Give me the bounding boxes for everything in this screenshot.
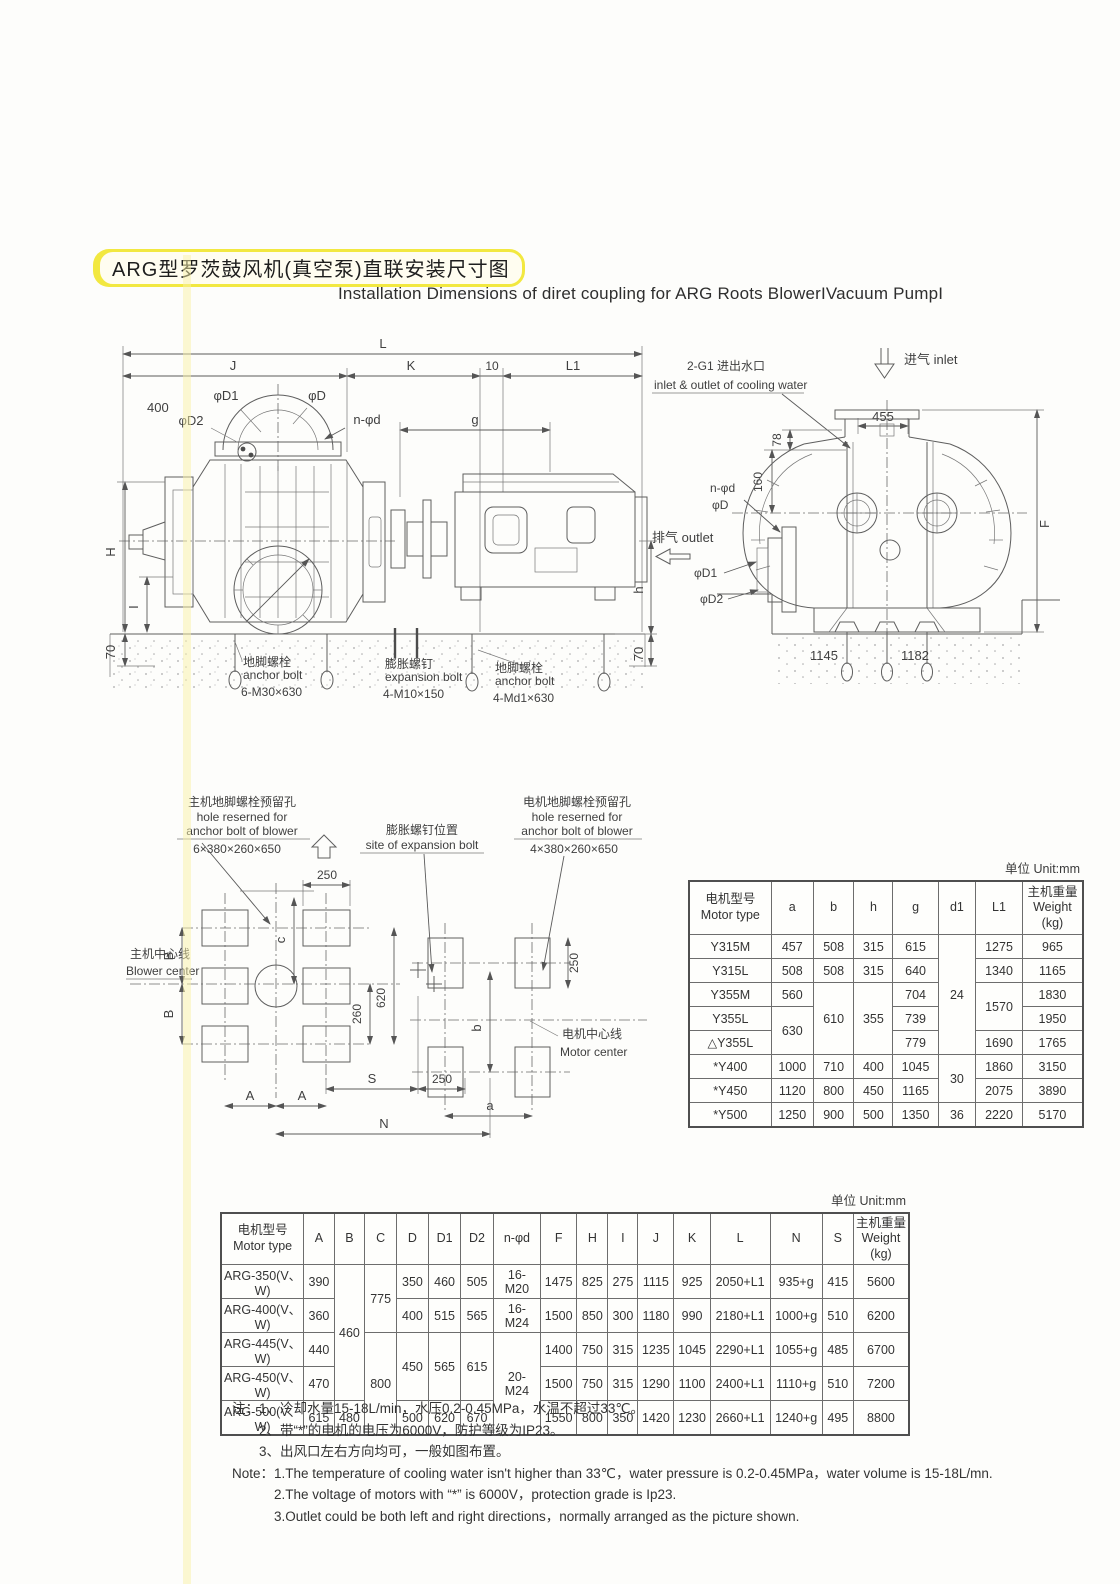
dim-label-N: N: [379, 1116, 388, 1131]
dim-label-260: 260: [350, 1004, 364, 1024]
cell: 1500: [541, 1299, 577, 1333]
cell: 990: [674, 1299, 710, 1333]
motor-dimension-table-block: 单位 Unit:mm 电机型号Motor type a b h g d1 L1 …: [688, 858, 1084, 1128]
note-en-3: 3.Outlet could be both left and right di…: [274, 1506, 1012, 1528]
cell: 350: [397, 1265, 429, 1299]
dim-label-c: c: [273, 936, 288, 943]
cell: 2290+L1: [710, 1333, 770, 1367]
col-header-g: g: [893, 881, 938, 935]
anchor-bolt1-en: anchor bolt: [243, 668, 303, 682]
col-header-n-phi-d: n-φd: [493, 1213, 540, 1265]
col-header-D: D: [397, 1213, 429, 1265]
dim-label-455: 455: [872, 409, 894, 424]
anchor-bolt2-spec: 4-Md1×630: [493, 691, 554, 705]
cell: 36: [938, 1103, 975, 1128]
cell: 1100: [674, 1367, 710, 1401]
dim-label-B1: B: [161, 952, 176, 961]
dim-label-I: I: [126, 605, 141, 609]
cell: 1115: [638, 1265, 674, 1299]
cell: 1045: [893, 1055, 938, 1079]
cell: 24: [938, 935, 975, 1055]
cell: 510: [822, 1299, 853, 1333]
cell: 935+g: [770, 1265, 822, 1299]
cell: 2180+L1: [710, 1299, 770, 1333]
col-header-a: a: [771, 881, 813, 935]
cell: 6200: [853, 1299, 909, 1333]
col-header-weight: 主机重量Weight(kg): [853, 1213, 909, 1265]
dim-label-A1: A: [246, 1088, 255, 1103]
cell: 630: [771, 1007, 813, 1055]
cell: 5600: [853, 1265, 909, 1299]
blower-center-en: Blower center: [126, 964, 199, 978]
cell: 2400+L1: [710, 1367, 770, 1401]
anchor-bolt1-zh: 地脚螺栓: [243, 654, 291, 669]
cell: 16-M20: [493, 1265, 540, 1299]
cell: 460: [334, 1265, 365, 1401]
col-header-b: b: [813, 881, 854, 935]
cell: 750: [577, 1367, 608, 1401]
cell: 400: [397, 1299, 429, 1333]
anchor-bolt2-en: anchor bolt: [495, 674, 555, 688]
cell: 1250: [771, 1103, 813, 1128]
cell: 300: [608, 1299, 638, 1333]
dim-label-F: F: [1037, 520, 1052, 528]
cell: 390: [304, 1265, 335, 1299]
dim-label-400: 400: [147, 400, 169, 415]
col-header-weight: 主机重量Weight(kg): [1022, 881, 1083, 935]
motor-hole-zh: 电机地脚螺栓预留孔: [523, 794, 631, 809]
motor-hole-spec: 4×380×260×650: [530, 842, 618, 856]
cell: 275: [608, 1265, 638, 1299]
dim-label-250-right: 250: [567, 953, 581, 973]
cell: 1290: [638, 1367, 674, 1401]
cell: 1055+g: [770, 1333, 822, 1367]
expansion-bolt-spec: 4-M10×150: [383, 687, 444, 701]
note-en-2: 2.The voltage of motors with “*” is 6000…: [274, 1484, 1012, 1506]
cell: 315: [854, 935, 893, 959]
cell: 2075: [976, 1079, 1023, 1103]
col-header-S: S: [822, 1213, 853, 1265]
dim-label-K: K: [407, 358, 416, 373]
dim-label-g: g: [471, 412, 478, 427]
cell: 500: [854, 1103, 893, 1128]
cell: 900: [813, 1103, 854, 1128]
cell: 450: [397, 1333, 429, 1401]
table1-unit-label: 单位 Unit:mm: [688, 858, 1080, 877]
cell: 850: [577, 1299, 608, 1333]
cell: 565: [461, 1299, 493, 1333]
cell: 1350: [893, 1103, 938, 1128]
cell: 615: [461, 1333, 493, 1401]
cell: 360: [304, 1299, 335, 1333]
cell: 30: [938, 1055, 975, 1103]
table-row: ARG-400(V、W) 360 400 515 565 16-M24 1500…: [221, 1299, 909, 1333]
cell: 355: [854, 983, 893, 1055]
table-header-row: 电机型号Motor type a b h g d1 L1 主机重量Weight(…: [689, 881, 1083, 935]
table-row: Y355M 560 610 355 704 1570 1830: [689, 983, 1083, 1007]
cell: ARG-350(V、W): [221, 1265, 304, 1299]
cell: 3890: [1022, 1079, 1083, 1103]
cell: 3150: [1022, 1055, 1083, 1079]
note-zh-3: 3、出风口左右方向均可，一般如图布置。: [259, 1441, 1012, 1463]
cell: Y355M: [689, 983, 771, 1007]
cell: 750: [577, 1333, 608, 1367]
col-header-motor-type: 电机型号Motor type: [221, 1213, 304, 1265]
cell: 739: [893, 1007, 938, 1031]
cell: 485: [822, 1333, 853, 1367]
cell: 800: [813, 1079, 854, 1103]
expansion-bolt-zh: 膨胀螺钉: [385, 657, 433, 671]
cell: 1000: [771, 1055, 813, 1079]
col-header-H: H: [577, 1213, 608, 1265]
notes-en-label: Note：: [232, 1463, 274, 1528]
cell: 315: [608, 1367, 638, 1401]
cell: 5170: [1022, 1103, 1083, 1128]
col-header-D1: D1: [428, 1213, 460, 1265]
dim-label-1145: 1145: [810, 648, 838, 663]
dim-label-1182: 1182: [901, 648, 929, 663]
phi-d-label: φD: [712, 498, 729, 512]
cell: Y355L: [689, 1007, 771, 1031]
dim-label-10: 10: [485, 359, 499, 373]
col-header-motor-type: 电机型号Motor type: [689, 881, 771, 935]
cell: 515: [428, 1299, 460, 1333]
col-header-N: N: [770, 1213, 822, 1265]
cell: 775: [365, 1265, 397, 1333]
cell: 825: [577, 1265, 608, 1299]
cell: 1110+g: [770, 1367, 822, 1401]
cell: 2050+L1: [710, 1265, 770, 1299]
dim-label-b: b: [469, 1024, 484, 1031]
cell: 1860: [976, 1055, 1023, 1079]
cell: 470: [304, 1367, 335, 1401]
motor-hole-en1: hole reserned for: [532, 810, 623, 824]
table-row: Y315M 457 508 315 615 24 1275 965: [689, 935, 1083, 959]
dim-label-L: L: [379, 336, 386, 351]
n-phi-d-label: n-φd: [353, 412, 380, 427]
col-header-L: L: [710, 1213, 770, 1265]
cell: 2220: [976, 1103, 1023, 1128]
cell: 1000+g: [770, 1299, 822, 1333]
cell: 1570: [976, 983, 1023, 1031]
page-subtitle: Installation Dimensions of diret couplin…: [338, 284, 943, 304]
anchor-bolt1-spec: 6-M30×630: [241, 685, 302, 699]
blower-hole-en1: hole reserned for: [197, 810, 288, 824]
expansion-bolt-en: expansion bolt: [385, 670, 463, 684]
cell: 457: [771, 935, 813, 959]
cell: *Y400: [689, 1055, 771, 1079]
inlet-arrow-icon: [875, 348, 894, 378]
col-header-I: I: [608, 1213, 638, 1265]
cell: 16-M24: [493, 1299, 540, 1333]
col-header-d1: d1: [938, 881, 975, 935]
cell: 1165: [1022, 959, 1083, 983]
cell: 460: [428, 1265, 460, 1299]
dim-label-620: 620: [374, 988, 388, 1008]
phi-d1-label: φD1: [694, 566, 717, 580]
col-header-B: B: [334, 1213, 365, 1265]
cell: 508: [813, 935, 854, 959]
col-header-J: J: [638, 1213, 674, 1265]
table2-unit-label: 单位 Unit:mm: [220, 1190, 906, 1209]
cell: 965: [1022, 935, 1083, 959]
cell: 505: [461, 1265, 493, 1299]
cell: 1165: [893, 1079, 938, 1103]
cell: 1690: [976, 1031, 1023, 1055]
cell: 1340: [976, 959, 1023, 983]
dim-label-B2: B: [161, 1010, 176, 1019]
cell: 315: [854, 959, 893, 983]
cell: 6700: [853, 1333, 909, 1367]
cell: 450: [854, 1079, 893, 1103]
dim-label-70-left: 70: [103, 645, 118, 659]
cell: Y315L: [689, 959, 771, 983]
cell: 610: [813, 983, 854, 1055]
foundation-plan-drawing: 主机地脚螺栓预留孔 hole reserned for anchor bolt …: [122, 788, 687, 1153]
motor-hole-en2: anchor bolt of blower: [521, 824, 632, 838]
cell: 704: [893, 983, 938, 1007]
col-header-D2: D2: [461, 1213, 493, 1265]
cell: 315: [608, 1333, 638, 1367]
cell: 779: [893, 1031, 938, 1055]
cell: 510: [822, 1367, 853, 1401]
cell: 1950: [1022, 1007, 1083, 1031]
cell: 1500: [541, 1367, 577, 1401]
cell: 1765: [1022, 1031, 1083, 1055]
motor-dimension-table: 电机型号Motor type a b h g d1 L1 主机重量Weight(…: [688, 880, 1084, 1128]
col-header-A: A: [304, 1213, 335, 1265]
cell: ARG-445(V、W): [221, 1333, 304, 1367]
phi-d2-label: φD2: [178, 413, 203, 428]
cell: 1275: [976, 935, 1023, 959]
cooling-label-zh: 2-G1 进出水口: [687, 359, 765, 373]
cell: ARG-400(V、W): [221, 1299, 304, 1333]
blower-hole-en2: anchor bolt of blower: [186, 824, 297, 838]
phi-d-label: φD: [308, 388, 326, 403]
cell: 1830: [1022, 983, 1083, 1007]
cell: *Y500: [689, 1103, 771, 1128]
col-header-L1: L1: [976, 881, 1023, 935]
dim-label-a: a: [486, 1098, 494, 1113]
motor-center-zh: 电机中心线: [562, 1026, 622, 1041]
table-row: ARG-350(V、W) 390 460 775 350 460 505 16-…: [221, 1265, 909, 1299]
outlet-label: 排气 outlet: [652, 530, 714, 545]
cell: △Y355L: [689, 1031, 771, 1055]
outlet-arrow-icon: [656, 549, 690, 564]
cell: 415: [822, 1265, 853, 1299]
dim-label-250-bottom: 250: [432, 1072, 452, 1086]
cell: 710: [813, 1055, 854, 1079]
expansion-site-zh: 膨胀螺钉位置: [386, 822, 458, 837]
flange-ticks: [751, 480, 1003, 570]
cell: 508: [771, 959, 813, 983]
inlet-label: 进气 inlet: [904, 352, 958, 367]
blower-center-zh: 主机中心线: [130, 946, 190, 961]
blower-hole-spec: 6×380×260×650: [193, 842, 281, 856]
cooling-label-en: inlet & outlet of cooling water: [654, 378, 807, 392]
cell: 1180: [638, 1299, 674, 1333]
cell: 1045: [674, 1333, 710, 1367]
table-row: *Y450 1120 800 450 1165 2075 3890: [689, 1079, 1083, 1103]
cell: 440: [304, 1333, 335, 1367]
table-row: *Y500 1250 900 500 1350 36 2220 5170: [689, 1103, 1083, 1128]
dim-label-A2: A: [298, 1088, 307, 1103]
table-header-row: 电机型号Motor type A B C D D1 D2 n-φd F H I …: [221, 1213, 909, 1265]
notes-zh-label: 注：: [232, 1398, 259, 1463]
up-arrow-icon: [312, 835, 336, 858]
note-zh-1: 1、冷却水量15-18L/min，水压0.2-0.45MPa，水温不超过33℃。: [259, 1398, 1012, 1420]
cell: 400: [854, 1055, 893, 1079]
cell: 560: [771, 983, 813, 1007]
col-header-F: F: [541, 1213, 577, 1265]
cell: Y315M: [689, 935, 771, 959]
table-row: ARG-450(V、W) 470 1500 750 315 1290 1100 …: [221, 1367, 909, 1401]
cell: 1235: [638, 1333, 674, 1367]
cell: 7200: [853, 1367, 909, 1401]
dim-label-S: S: [368, 1071, 377, 1086]
note-zh-2: 2、带“*”的电机的电压为6000V，防护等级为IP23。: [259, 1420, 1012, 1442]
table-row: *Y400 1000 710 400 1045 30 1860 3150: [689, 1055, 1083, 1079]
col-header-C: C: [365, 1213, 397, 1265]
page-title: ARG型罗茨鼓风机(真空泵)直联安装尺寸图: [97, 249, 525, 287]
concrete-texture: [110, 636, 645, 690]
side-view-drawing: L J K 10 L1 400 φD1 φD φD2 n-φd: [95, 332, 660, 732]
anchor-bolt2-zh: 地脚螺栓: [495, 660, 543, 675]
dim-label-J: J: [230, 358, 237, 373]
cell: 1120: [771, 1079, 813, 1103]
cell: 565: [428, 1333, 460, 1401]
motor-center-en: Motor center: [560, 1045, 627, 1059]
col-header-h: h: [854, 881, 893, 935]
table-row: ARG-445(V、W) 440 800 450 565 615 20-M24 …: [221, 1333, 909, 1367]
cell: ARG-450(V、W): [221, 1367, 304, 1401]
cell: 1400: [541, 1333, 577, 1367]
blower-hole-zh: 主机地脚螺栓预留孔: [188, 794, 296, 809]
table-row: Y315L 508 508 315 640 1340 1165: [689, 959, 1083, 983]
n-phi-d-label: n-φd: [710, 481, 735, 495]
phi-d1-label: φD1: [213, 388, 238, 403]
notes-block: 注： 1、冷却水量15-18L/min，水压0.2-0.45MPa，水温不超过3…: [232, 1398, 1012, 1528]
cell: 925: [674, 1265, 710, 1299]
dim-label-H: H: [103, 547, 118, 556]
end-view-drawing: 进气 inlet 2-G1 进出水口 inlet & outlet of coo…: [632, 342, 1067, 692]
note-en-1: 1.The temperature of cooling water isn't…: [274, 1463, 1012, 1485]
cell: *Y450: [689, 1079, 771, 1103]
cell: 1475: [541, 1265, 577, 1299]
cell: 615: [893, 935, 938, 959]
expansion-site-en: site of expansion bolt: [366, 838, 479, 852]
dim-label-78: 78: [770, 433, 784, 447]
cell: 640: [893, 959, 938, 983]
cell: 508: [813, 959, 854, 983]
dim-label-L1: L1: [566, 358, 580, 373]
col-header-K: K: [674, 1213, 710, 1265]
dim-label-250-top: 250: [317, 868, 337, 882]
